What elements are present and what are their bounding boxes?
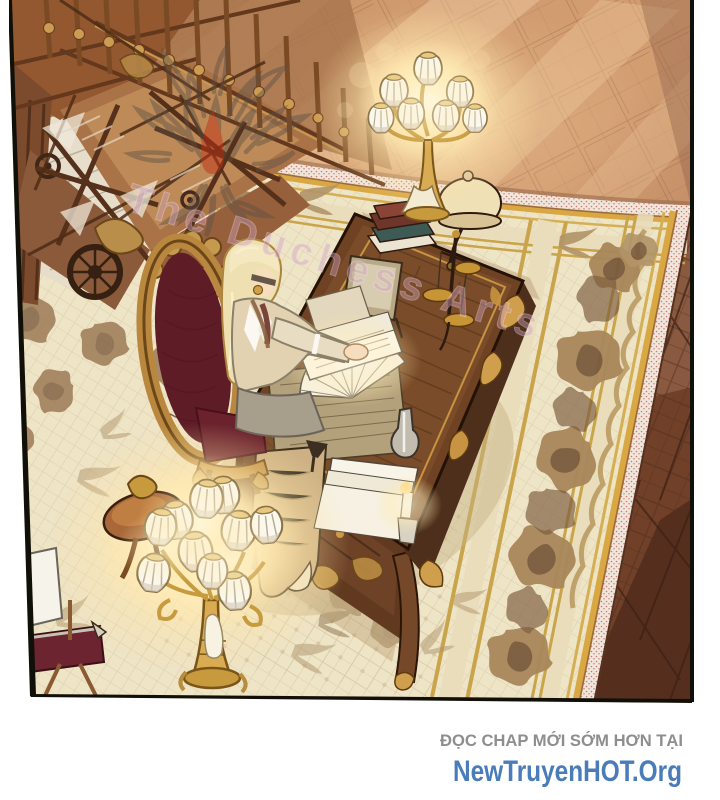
svg-text:ĐỌC CHAP MỚI SỚM HƠN TẠI: ĐỌC CHAP MỚI SỚM HƠN TẠI — [440, 731, 683, 750]
svg-text:NewTruyenHOT.Org: NewTruyenHOT.Org — [453, 755, 682, 788]
